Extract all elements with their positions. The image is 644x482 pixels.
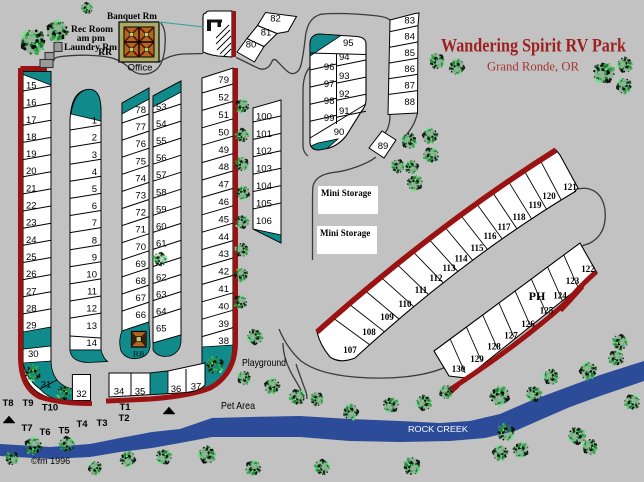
svg-text:6: 6 (92, 201, 97, 212)
svg-text:4: 4 (92, 167, 97, 178)
svg-text:35: 35 (135, 387, 146, 398)
svg-text:111: 111 (415, 285, 428, 295)
svg-text:40: 40 (218, 301, 229, 312)
svg-text:28: 28 (26, 303, 37, 314)
svg-text:21: 21 (26, 183, 37, 194)
svg-text:22: 22 (26, 201, 37, 212)
svg-text:48: 48 (218, 162, 229, 173)
svg-text:60: 60 (156, 221, 167, 232)
svg-text:31: 31 (41, 380, 52, 391)
svg-text:8: 8 (92, 235, 97, 246)
svg-text:2: 2 (92, 133, 97, 144)
svg-text:49: 49 (218, 145, 229, 156)
svg-text:108: 108 (362, 327, 376, 337)
svg-text:30: 30 (28, 349, 39, 360)
svg-text:50: 50 (218, 127, 229, 138)
svg-text:T2: T2 (118, 413, 129, 424)
svg-text:41: 41 (218, 284, 229, 295)
svg-text:42: 42 (218, 267, 229, 278)
svg-text:68: 68 (135, 276, 146, 287)
svg-text:52: 52 (218, 93, 229, 104)
svg-text:113: 113 (442, 263, 456, 273)
svg-text:36: 36 (171, 384, 182, 395)
svg-text:94: 94 (339, 52, 350, 63)
svg-text:77: 77 (135, 122, 146, 133)
svg-text:80: 80 (246, 40, 257, 51)
svg-text:97: 97 (324, 79, 335, 90)
svg-text:126: 126 (521, 319, 535, 329)
svg-text:14: 14 (86, 338, 97, 349)
svg-text:43: 43 (218, 249, 229, 260)
svg-text:120: 120 (542, 191, 556, 201)
svg-text:15: 15 (26, 81, 37, 92)
svg-text:5: 5 (92, 184, 97, 195)
svg-text:100: 100 (256, 111, 272, 122)
svg-text:18: 18 (26, 132, 37, 143)
svg-text:17: 17 (26, 115, 37, 126)
svg-text:129: 129 (470, 354, 484, 364)
svg-text:38: 38 (218, 336, 229, 347)
svg-text:7: 7 (92, 218, 97, 229)
svg-text:95: 95 (343, 38, 354, 49)
svg-text:106: 106 (256, 216, 272, 227)
svg-text:85: 85 (404, 48, 415, 59)
svg-text:114: 114 (454, 254, 468, 264)
svg-text:117: 117 (497, 222, 511, 232)
svg-text:89: 89 (378, 141, 389, 152)
svg-text:Grand Ronde, OR: Grand Ronde, OR (487, 59, 579, 74)
svg-text:59: 59 (156, 204, 167, 215)
svg-text:99: 99 (324, 113, 335, 124)
svg-text:3: 3 (92, 150, 97, 161)
svg-text:T4: T4 (76, 419, 88, 430)
svg-text:71: 71 (135, 225, 146, 236)
svg-text:64: 64 (156, 307, 167, 318)
svg-text:73: 73 (135, 191, 146, 202)
svg-text:56: 56 (156, 153, 167, 164)
svg-text:58: 58 (156, 187, 167, 198)
svg-text:Office: Office (128, 63, 153, 74)
svg-text:10: 10 (86, 270, 97, 281)
svg-text:87: 87 (404, 81, 415, 92)
svg-text:T7: T7 (21, 423, 32, 434)
svg-text:16: 16 (26, 98, 37, 109)
svg-text:47: 47 (218, 180, 229, 191)
svg-text:RR: RR (98, 48, 112, 58)
svg-text:34: 34 (114, 387, 125, 398)
svg-text:91: 91 (339, 106, 350, 117)
svg-text:ROCK CREEK: ROCK CREEK (408, 424, 468, 434)
svg-text:45: 45 (218, 214, 229, 225)
svg-text:121: 121 (563, 182, 577, 192)
svg-text:115: 115 (470, 243, 484, 253)
svg-text:112: 112 (429, 273, 443, 283)
svg-text:110: 110 (398, 299, 412, 309)
svg-text:57: 57 (156, 170, 167, 181)
svg-text:T9: T9 (22, 398, 33, 409)
svg-text:T5: T5 (58, 426, 70, 437)
svg-text:9: 9 (92, 252, 97, 263)
svg-text:86: 86 (404, 64, 415, 75)
svg-text:75: 75 (135, 156, 146, 167)
svg-text:105: 105 (256, 198, 272, 209)
svg-text:25: 25 (26, 252, 37, 263)
svg-text:62: 62 (156, 273, 167, 284)
svg-text:44: 44 (218, 232, 229, 243)
svg-text:Banquet Rm: Banquet Rm (107, 11, 157, 21)
svg-text:74: 74 (135, 173, 146, 184)
svg-text:63: 63 (156, 290, 167, 301)
svg-text:79: 79 (218, 75, 229, 86)
svg-text:26: 26 (26, 269, 37, 280)
svg-text:104: 104 (256, 181, 272, 192)
svg-text:98: 98 (324, 96, 335, 107)
svg-text:93: 93 (339, 71, 350, 82)
svg-text:103: 103 (256, 164, 272, 175)
svg-text:102: 102 (256, 146, 272, 157)
svg-text:116: 116 (483, 231, 497, 241)
svg-text:T8: T8 (2, 398, 13, 409)
svg-text:12: 12 (86, 304, 97, 315)
svg-text:20: 20 (26, 166, 37, 177)
svg-text:130: 130 (452, 364, 466, 374)
svg-text:Mini Storage: Mini Storage (320, 228, 370, 238)
svg-text:27: 27 (26, 286, 37, 297)
svg-text:90: 90 (334, 127, 345, 138)
svg-text:96: 96 (324, 62, 335, 73)
svg-text:Pet Area: Pet Area (221, 400, 255, 412)
svg-text:107: 107 (343, 345, 357, 355)
svg-text:55: 55 (156, 136, 167, 147)
svg-text:Mini Storage: Mini Storage (321, 188, 371, 198)
svg-text:24: 24 (26, 235, 37, 246)
svg-text:32: 32 (76, 389, 87, 400)
svg-text:78: 78 (135, 105, 146, 116)
svg-text:T10: T10 (42, 403, 58, 414)
svg-text:53: 53 (156, 102, 167, 113)
svg-text:127: 127 (504, 331, 518, 341)
svg-text:123: 123 (566, 276, 580, 286)
svg-text:1: 1 (92, 116, 97, 127)
svg-text:125: 125 (540, 306, 554, 316)
svg-text:83: 83 (404, 16, 415, 27)
svg-text:81: 81 (261, 28, 272, 39)
svg-text:101: 101 (256, 129, 272, 140)
svg-text:119: 119 (528, 200, 542, 210)
svg-text:19: 19 (26, 149, 37, 160)
svg-text:76: 76 (135, 139, 146, 150)
svg-text:51: 51 (218, 110, 229, 121)
svg-text:PH: PH (529, 289, 546, 303)
svg-text:124: 124 (553, 291, 567, 301)
svg-text:128: 128 (487, 342, 501, 352)
svg-text:118: 118 (512, 212, 526, 222)
svg-text:72: 72 (135, 208, 146, 219)
svg-text:69: 69 (135, 259, 146, 270)
svg-text:82: 82 (270, 14, 281, 25)
svg-text:23: 23 (26, 218, 37, 229)
svg-text:13: 13 (86, 321, 97, 332)
svg-text:T6: T6 (39, 427, 50, 438)
svg-text:70: 70 (135, 242, 146, 253)
svg-text:©fm 1996: ©fm 1996 (31, 456, 70, 466)
svg-text:67: 67 (135, 293, 146, 304)
svg-text:T3: T3 (96, 418, 107, 429)
svg-text:66: 66 (135, 310, 146, 321)
svg-text:T1: T1 (119, 402, 131, 413)
svg-text:11: 11 (87, 287, 97, 298)
svg-text:61: 61 (156, 238, 167, 249)
svg-text:46: 46 (218, 197, 229, 208)
svg-text:88: 88 (404, 97, 415, 108)
svg-text:54: 54 (156, 119, 167, 130)
svg-text:Playground: Playground (242, 357, 286, 369)
svg-text:37: 37 (191, 382, 202, 393)
svg-text:29: 29 (26, 321, 37, 332)
svg-text:92: 92 (339, 89, 350, 100)
svg-text:RR: RR (133, 349, 146, 359)
svg-text:65: 65 (156, 324, 167, 335)
svg-text:84: 84 (404, 32, 415, 43)
svg-text:Wandering Spirit RV Park: Wandering Spirit RV Park (441, 36, 626, 57)
svg-text:39: 39 (218, 319, 229, 330)
svg-text:109: 109 (380, 312, 394, 322)
svg-text:122: 122 (581, 264, 595, 274)
